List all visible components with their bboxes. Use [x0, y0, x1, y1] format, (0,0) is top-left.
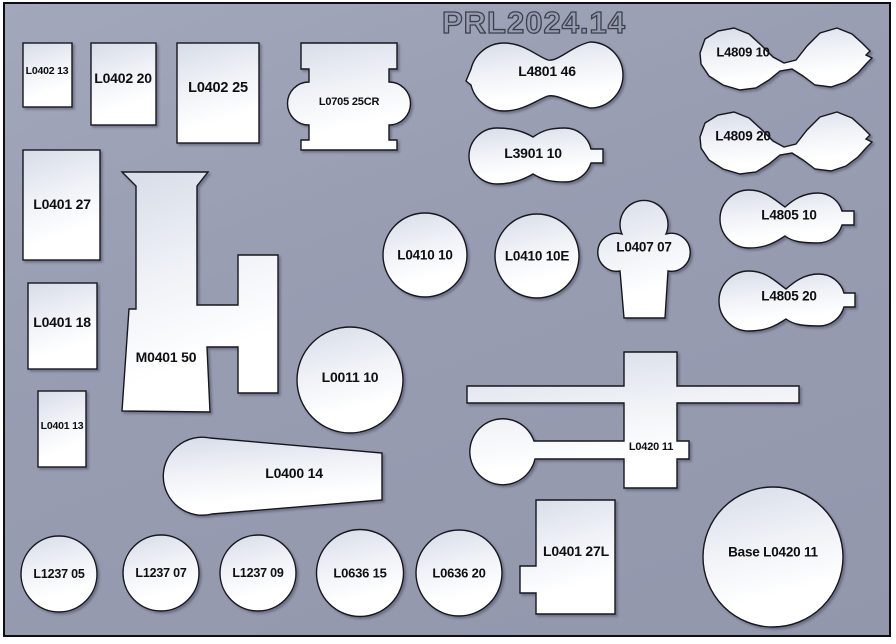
part-shape-l1237-07[interactable]	[123, 535, 199, 611]
part-shape-l0402-20[interactable]	[91, 43, 156, 125]
part-shape-l0410-10[interactable]	[383, 213, 467, 297]
part-shape-l0705-25cr[interactable]	[288, 43, 411, 150]
part-shape-l0636-20[interactable]	[416, 530, 502, 616]
part-shape-l0407-07[interactable]	[598, 200, 690, 318]
part-shape-l0402-13[interactable]	[23, 43, 72, 107]
part-shape-l0401-13[interactable]	[38, 391, 86, 467]
part-shape-l4805-20[interactable]	[719, 271, 855, 331]
part-shape-l4805-10[interactable]	[720, 190, 854, 248]
part-shape-l0410-10e[interactable]	[495, 214, 579, 298]
part-shape-l0420-11[interactable]	[467, 352, 799, 488]
part-shape-l4801-46[interactable]	[466, 42, 623, 111]
part-shape-l4809-20[interactable]	[700, 112, 872, 174]
cad-nesting-sheet-view: PRL2024.14 L0402 13 L0402 20 L0402 25 L0…	[0, 0, 896, 644]
part-shape-l1237-05[interactable]	[21, 536, 97, 612]
part-shape-l0401-27[interactable]	[23, 150, 100, 260]
part-shape-l0401-18[interactable]	[28, 283, 97, 369]
part-shape-l0400-14[interactable]	[163, 437, 382, 515]
part-shape-base-l0420-11[interactable]	[703, 487, 843, 627]
part-shape-m0401-50[interactable]	[122, 172, 278, 412]
part-shape-l0401-27l[interactable]	[520, 500, 615, 614]
part-shape-l0636-15[interactable]	[317, 530, 404, 617]
shape-canvas	[0, 0, 896, 644]
part-shape-l0011-10[interactable]	[297, 327, 403, 433]
part-shape-l0402-25[interactable]	[177, 43, 259, 143]
part-shape-l4809-10[interactable]	[700, 28, 872, 90]
part-shape-l1237-09[interactable]	[220, 535, 296, 611]
part-shape-l3901-10[interactable]	[469, 128, 603, 184]
